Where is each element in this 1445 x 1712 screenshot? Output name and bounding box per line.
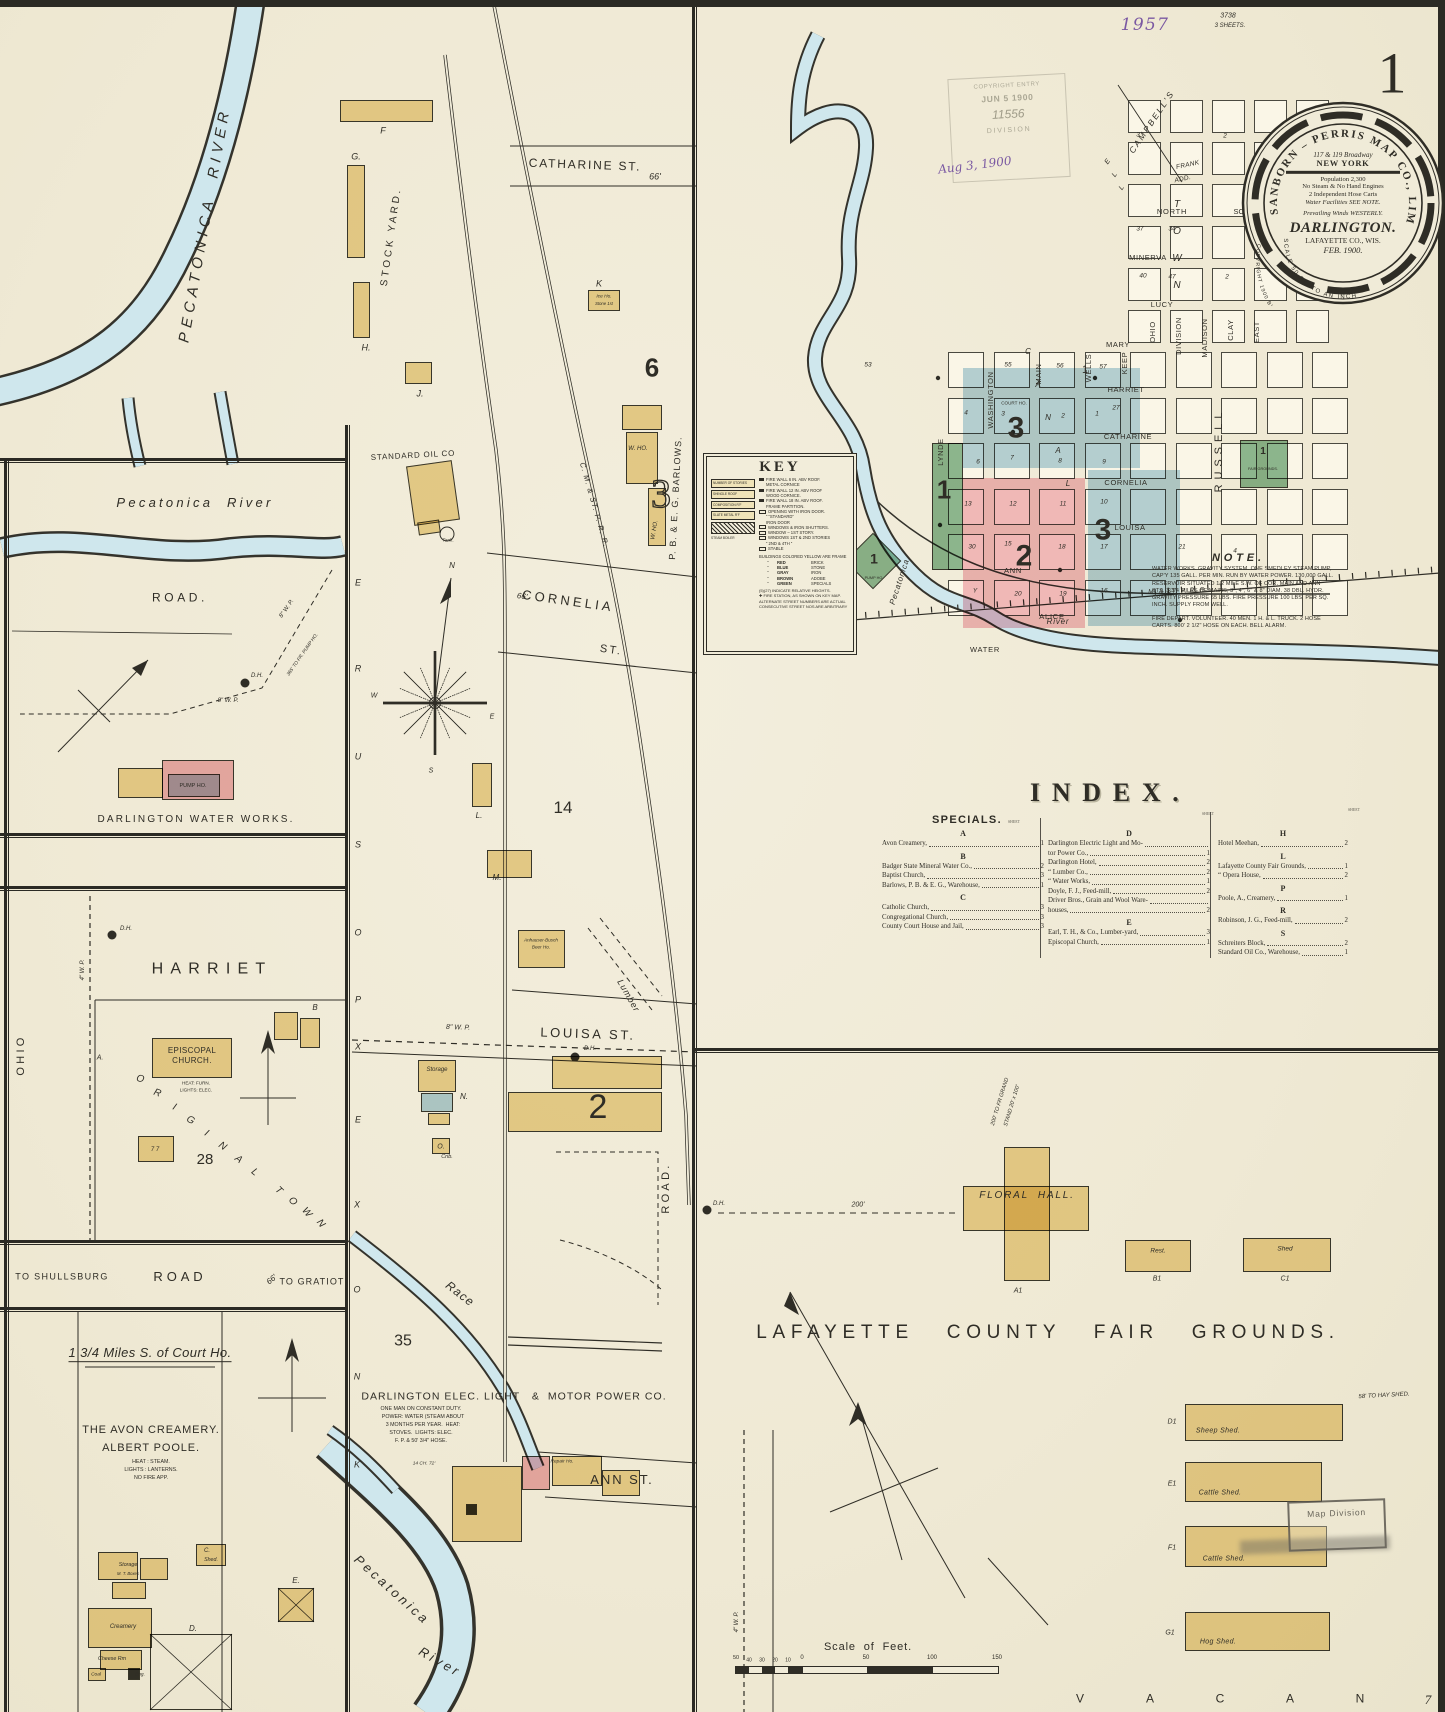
map-label: W <box>371 692 378 699</box>
map-label: ANN ST. <box>590 1473 654 1487</box>
map-label: 50 <box>863 1655 870 1661</box>
panel-border-vertical <box>4 458 9 1712</box>
map-label: 0 <box>800 1655 803 1661</box>
keymap-block <box>1312 489 1348 525</box>
map-label: THE AVON CREAMERY. <box>82 1425 219 1437</box>
map-label: Y <box>973 589 977 596</box>
map-label: F. P. & 50' 3/4" HOSE. <box>395 1439 447 1445</box>
building <box>428 1113 450 1125</box>
scale-bar <box>735 1666 999 1674</box>
map-label: HEAT: FURN. <box>182 1082 210 1087</box>
map-label: 1 <box>1260 447 1266 458</box>
map-label: WATER <box>970 646 1000 654</box>
map-label: Shed. <box>204 1558 218 1564</box>
scale-segment <box>775 1667 788 1673</box>
key-sample-label: NUMBER OF STORIES <box>711 479 755 488</box>
map-label: 3 <box>651 473 671 515</box>
keymap-block <box>1312 352 1348 388</box>
map-label: ROAD. <box>152 592 208 605</box>
map-label: 11 <box>1060 502 1067 509</box>
map-label: G. <box>351 152 361 161</box>
map-label: 53 <box>864 363 871 370</box>
index-entry: County Court House and Jail,3 <box>882 922 1044 932</box>
map-label: 34 <box>1168 227 1175 234</box>
panel-border <box>0 886 345 891</box>
building <box>552 1056 662 1089</box>
map-label: OHIO <box>1149 321 1157 343</box>
map-label: L <box>1066 480 1070 488</box>
map-label: MINERVA <box>1129 254 1167 262</box>
map-label: D.H. <box>584 1046 596 1052</box>
map-label: J. <box>416 389 423 398</box>
keymap-block <box>1221 489 1257 525</box>
map-label: 1 3/4 Miles S. of Court Ho. <box>69 1346 232 1362</box>
map-label: 20 <box>1014 592 1021 599</box>
map-label: S <box>429 767 434 774</box>
map-label: Anhauser-Busch <box>524 939 558 944</box>
map-label: D1 <box>1168 1418 1177 1425</box>
map-label: PUMP HO. <box>179 784 206 790</box>
building <box>150 1634 232 1710</box>
map-label: 21 <box>1178 545 1185 552</box>
map-label: Ice Ho. <box>596 294 611 299</box>
keymap-block <box>1312 443 1348 479</box>
fairgrounds-panel-border <box>692 1048 1440 1053</box>
map-label: Eng. <box>135 1672 145 1677</box>
map-label: O <box>353 1285 360 1294</box>
index-letter-heading: A <box>882 829 1044 838</box>
index-entry: Doyle, F. J., Feed-mill,2 <box>1048 887 1210 897</box>
stamp-date: JUN 5 1900 <box>949 90 1065 106</box>
map-label: A <box>1286 1693 1294 1706</box>
map-label: Cattle Shed. <box>1203 1555 1246 1562</box>
map-label: 28 <box>197 1152 214 1168</box>
map-label: K <box>354 1460 360 1469</box>
map-label: LOUISA ST. <box>540 1026 636 1043</box>
map-label: 2 <box>589 1090 608 1126</box>
map-label: TO SHULLSBURG <box>15 1272 108 1281</box>
sheet-top-edge <box>0 0 1445 7</box>
map-label: V <box>1076 1693 1084 1706</box>
index-entry: Episcopal Church,1 <box>1048 938 1210 948</box>
map-label: E1 <box>1168 1480 1177 1487</box>
map-label: N <box>449 562 455 570</box>
scale-segment <box>803 1667 867 1673</box>
map-label: Storage <box>426 1067 447 1073</box>
map-label: LAFAYETTE COUNTY FAIR GROUNDS. <box>756 1323 1340 1343</box>
index-title: INDEX. <box>1030 778 1191 808</box>
key-footnotes: (5)(27) INDICATE RELATIVE HEIGHTS.✚ FIRE… <box>759 588 851 609</box>
building <box>300 1018 320 1048</box>
map-label: 1 <box>937 476 951 503</box>
map-label: 1 <box>1095 412 1099 419</box>
map-label: A. <box>97 1054 104 1061</box>
map-label: K <box>596 279 602 288</box>
map-label: 1 <box>1082 365 1088 377</box>
map-label: E. <box>292 1577 300 1585</box>
map-label: DARLINGTON ELEC. LIGHT & MOTOR POWER CO. <box>361 1391 666 1402</box>
building <box>472 763 492 807</box>
seal-center-text: 117 & 119 Broadway NEW YORK Population 2… <box>1278 151 1408 255</box>
map-label: Shed <box>1277 1247 1292 1254</box>
map-label: 10 <box>1100 500 1107 507</box>
building <box>1243 1238 1331 1272</box>
map-label: 3 <box>1001 412 1005 419</box>
map-label: 2 <box>1223 134 1227 141</box>
index-letter-heading: E <box>1048 918 1210 927</box>
map-label: D.H. <box>251 673 263 679</box>
key-sample-diagrams: NUMBER OF STORIESSHINGLE ROOFCOMPOSITION… <box>711 479 755 541</box>
map-label: 16 <box>1100 589 1107 596</box>
map-label: 37 <box>1136 227 1143 234</box>
index-entry: Catholic Church,3 <box>882 903 1044 913</box>
panel-border <box>0 1240 345 1245</box>
index-letter-heading: D <box>1048 829 1210 838</box>
scale-segment <box>736 1667 749 1673</box>
panel-border <box>0 1307 345 1312</box>
map-label: Cattle Shed. <box>1199 1489 1242 1496</box>
index-entry: tor Power Co.,1 <box>1048 849 1210 859</box>
building <box>1125 1240 1191 1272</box>
index-entry: Driver Bros., Grain and Wool Ware- <box>1048 896 1210 906</box>
map-label: 14 <box>554 799 573 817</box>
map-label: 13 <box>964 502 971 509</box>
key-hatch-sample <box>711 522 755 534</box>
map-label: 10 <box>785 1658 791 1663</box>
panel-border-vertical <box>345 425 350 1712</box>
building <box>274 1012 298 1040</box>
keymap-block <box>1312 398 1348 434</box>
map-label: CLAY <box>1227 319 1235 340</box>
index-entry: Badger State Mineral Water Co.,2 <box>882 862 1044 872</box>
map-label: Creamery <box>110 1624 136 1630</box>
seal-title: DARLINGTON. <box>1278 220 1408 237</box>
map-label: E <box>355 578 361 587</box>
scale-segment <box>762 1667 775 1673</box>
map-label: H. <box>362 343 371 352</box>
seal-water-facilities: Water Facilities SEE NOTE. <box>1278 198 1408 206</box>
keymap-block <box>1267 398 1303 434</box>
key-sample-label: SLATE METAL R'F <box>711 511 755 520</box>
map-label: 55 <box>1004 363 1011 370</box>
scale-segment <box>933 1667 998 1673</box>
index-letter-heading: L <box>1218 852 1348 861</box>
map-label: HARRIET <box>152 962 273 979</box>
index-letter-heading: H <box>1218 829 1348 838</box>
map-label: CATHARINE <box>1104 433 1152 441</box>
map-label: W. HO. <box>628 446 647 452</box>
map-label: COURT HO. <box>1001 402 1027 407</box>
map-label: D.H. <box>713 1201 725 1207</box>
map-label: B1 <box>1153 1275 1162 1282</box>
map-label: D. <box>189 1625 197 1633</box>
panel-border <box>0 833 345 838</box>
map-label: River <box>1047 618 1070 626</box>
map-label: E <box>490 713 495 720</box>
map-label: 4" W. P. <box>734 1612 740 1633</box>
map-label: X <box>355 1042 361 1051</box>
map-label: CORNELIA <box>1104 479 1147 487</box>
map-label: N. <box>460 1093 468 1101</box>
index-entry: Congregational Church,3 <box>882 913 1044 923</box>
map-label: 2 <box>1225 275 1229 282</box>
map-label: 7 7 <box>151 1147 159 1153</box>
map-label: MARY <box>1106 341 1130 349</box>
index-entry: Avon Creamery,1 <box>882 839 1044 849</box>
map-label: D.H. <box>120 926 132 932</box>
index-column-rule <box>1210 812 1211 958</box>
key-color-row: “GREENSPECIALS <box>759 581 851 586</box>
map-label: 3738 <box>1220 12 1236 19</box>
map-label: 200' <box>851 1201 864 1208</box>
map-label: NORTH <box>1157 208 1187 216</box>
building <box>140 1558 168 1580</box>
map-label: S <box>355 840 361 849</box>
index-entry: houses,2 <box>1048 906 1210 916</box>
panel-border-vertical <box>692 7 697 1712</box>
map-label: 3 <box>1136 133 1140 140</box>
map-label: Sheep Shed. <box>1196 1427 1240 1434</box>
building <box>508 1092 662 1132</box>
map-label: 15 <box>1004 542 1011 549</box>
map-label: 100 <box>927 1655 937 1661</box>
map-label: Storage <box>119 1563 138 1569</box>
index-entry: Barlows, P. B. & E. G., Warehouse,1 <box>882 881 1044 891</box>
map-label: O <box>354 928 361 937</box>
keymap-block <box>1267 352 1303 388</box>
note-title: NOTE. <box>1212 552 1334 564</box>
map-label: Rest. <box>1150 1249 1165 1256</box>
map-label: C <box>1025 348 1031 356</box>
map-label: RUSSELL <box>1214 408 1226 493</box>
map-label: 56 <box>1056 364 1063 371</box>
map-label: 19 <box>1059 592 1066 599</box>
scale-segment <box>867 1667 933 1673</box>
map-label: OHIO <box>16 1034 28 1075</box>
map-label: 47 <box>1168 275 1175 282</box>
map-label: 7 <box>1425 1693 1432 1707</box>
seal-winds: Prevailing Winds WESTERLY. <box>1278 210 1408 218</box>
index-entry: Earl, T. H., & Co., Lumber-yard,3 <box>1048 928 1210 938</box>
map-label: 30 <box>968 545 975 552</box>
map-label: N <box>354 1372 361 1381</box>
map-label: P <box>355 995 361 1004</box>
map-label: HARRIET <box>1107 386 1144 394</box>
index-entry: “ Lumber Co.,2 <box>1048 868 1210 878</box>
index-entry: “ Opera House,2 <box>1218 871 1348 881</box>
index-letter-heading: R <box>1218 906 1348 915</box>
seal-city: NEW YORK <box>1278 159 1408 169</box>
map-label: 20 <box>772 1658 778 1663</box>
map-label: T <box>1174 200 1180 211</box>
map-label: 8" W. P. <box>218 698 239 704</box>
index-entry: Baptist Church,3 <box>882 871 1044 881</box>
map-label: NO FIRE APP. <box>134 1476 168 1482</box>
map-label: L. <box>476 812 483 820</box>
keymap-block <box>1221 352 1257 388</box>
map-label: STOVES. LIGHTS: ELEC. <box>389 1431 452 1437</box>
map-label: EPISCOPAL <box>168 1047 216 1055</box>
map-label: 3 SHEETS. <box>1215 23 1246 29</box>
map-label: 30 <box>759 1658 765 1663</box>
map-label: C <box>1216 1693 1225 1706</box>
map-label: PUMP HO. <box>865 576 884 580</box>
key-sample-label: SHINGLE ROOF <box>711 490 755 499</box>
building <box>405 362 432 384</box>
map-label: W <box>1172 254 1181 265</box>
map-label: LIGHTS: ELEC. <box>180 1089 212 1094</box>
index-sheet-microlabel: SHEET <box>1202 812 1214 816</box>
index-entry: Standard Oil Co., Warehouse,1 <box>1218 948 1348 958</box>
map-label: F <box>380 126 386 135</box>
building <box>1185 1404 1343 1441</box>
seal-population: Population 2,300 <box>1278 176 1408 184</box>
index-column: AAvon Creamery,1BBadger State Mineral Wa… <box>882 826 1044 932</box>
index-entry: Robinson, J. G., Feed-mill,2 <box>1218 916 1348 926</box>
map-label: LOUISA <box>1114 524 1145 532</box>
note-section: NOTE. WATER WORKS. GRAVITY SYSTEM. ONE S… <box>1152 552 1334 636</box>
map-label: 57 <box>1099 365 1106 372</box>
building <box>452 1466 522 1542</box>
map-label: Cheese Rm <box>98 1657 126 1663</box>
map-label: ONE MAN ON CONSTANT DUTY. <box>381 1407 462 1413</box>
map-label: WASHINGTON <box>987 371 995 428</box>
building <box>118 768 163 798</box>
key-legend: KEY NUMBER OF STORIESSHINGLE ROOFCOMPOSI… <box>706 456 854 652</box>
scale-segment <box>788 1667 803 1673</box>
map-label: C. <box>204 1548 210 1554</box>
map-label: 3 <box>1095 514 1112 546</box>
building <box>278 1588 314 1622</box>
index-entry: Darlington Hotel,2 <box>1048 858 1210 868</box>
map-label: 14 CH. 72' <box>413 1461 436 1466</box>
map-label: KEEP <box>1121 352 1129 374</box>
map-label: MADISON <box>1201 318 1209 357</box>
index-letter-heading: C <box>882 893 1044 902</box>
building <box>347 165 365 258</box>
map-label: FAIR GROUNDS. <box>1248 467 1278 471</box>
map-label: 35 <box>394 1334 412 1351</box>
keymap-block <box>1170 100 1203 133</box>
map-label: 1 <box>1378 44 1407 105</box>
map-label: F1 <box>1168 1544 1176 1551</box>
map-label: A <box>1146 1693 1154 1706</box>
map-label: X <box>354 1200 360 1209</box>
map-label: Tank. <box>442 538 454 543</box>
sanborn-perris-seal: SANBORN – PERRIS MAP CO., LIMITED COPYRI… <box>1240 100 1445 306</box>
index-sheet-microlabel: SHEET <box>1008 820 1020 824</box>
note-water-works: WATER WORKS. GRAVITY SYSTEM. ONE SMEDLEY… <box>1152 566 1334 610</box>
map-label: Stone 1st <box>595 302 613 306</box>
map-label: 50 <box>733 1656 739 1662</box>
map-label: U <box>355 752 362 761</box>
map-label: Pecatonica River <box>116 496 273 510</box>
map-label: 6 <box>976 460 980 467</box>
key-sample-label: STEAM BOILER <box>711 536 755 541</box>
map-label: 66' <box>649 172 661 181</box>
building <box>466 1504 477 1515</box>
map-label: CHURCH. <box>172 1057 212 1065</box>
keymap-block <box>1176 443 1212 479</box>
stamp-division: DIVISION <box>951 124 1067 137</box>
building <box>522 1456 550 1490</box>
panel-border <box>0 458 345 463</box>
building <box>340 100 433 122</box>
map-label: 2 <box>1061 414 1065 421</box>
map-label: E <box>355 1115 361 1124</box>
index-column-rule <box>1040 818 1041 958</box>
index-entry: Darlington Electric Light and Mo- <box>1048 839 1210 849</box>
map-label: 1957 <box>1121 17 1170 35</box>
key-title: KEY <box>710 459 850 476</box>
map-label: Repair Ho. <box>551 1459 574 1464</box>
map-label: 6 <box>645 354 659 381</box>
map-label: DARLINGTON WATER WORKS. <box>97 815 294 826</box>
map-label: Coal <box>91 1672 101 1677</box>
map-label: N <box>1173 281 1180 292</box>
map-label: 9 <box>1102 460 1106 467</box>
keymap-block <box>1176 489 1212 525</box>
seal-date: FEB. 1900. <box>1278 245 1408 255</box>
building <box>406 460 460 526</box>
seal-hose-carts: 2 Independent Hose Carts <box>1278 191 1408 199</box>
map-label: N <box>1356 1693 1365 1706</box>
index-letter-heading: S <box>1218 929 1348 938</box>
map-label: A <box>1035 381 1040 389</box>
index-entry: Lafayette County Fair Grounds,1 <box>1218 862 1348 872</box>
map-label: M. <box>493 874 502 882</box>
keymap-block <box>1267 489 1303 525</box>
map-label: 3 <box>1008 412 1025 444</box>
map-label: EAST <box>1253 321 1261 343</box>
key-sample-label: COMPOSITION R'F <box>711 501 755 510</box>
map-label: DIVISION <box>1175 317 1183 355</box>
map-label: 4 <box>964 411 968 418</box>
map-label: LYNDE <box>937 438 945 465</box>
index-letter-heading: P <box>1218 884 1348 893</box>
map-label: 40 <box>746 1658 752 1663</box>
map-label: LIGHTS : LANTERNS. <box>124 1468 177 1474</box>
index-entry: Hotel Meehan,2 <box>1218 839 1348 849</box>
index-entry: Schreiters Block,2 <box>1218 939 1348 949</box>
map-label: 27 <box>1112 406 1119 413</box>
map-label: Beer Ho. <box>532 946 550 951</box>
map-label: 150 <box>992 1655 1002 1661</box>
map-label: 4" W. P. <box>80 960 86 981</box>
building <box>1004 1147 1050 1281</box>
map-label: 7 <box>1010 456 1014 463</box>
map-label: G1 <box>1165 1629 1174 1636</box>
note-fire-department: FIRE DEPART. VOLUNTEER. 40 MEN. 1 H. & L… <box>1152 616 1334 631</box>
scale-segment <box>749 1667 762 1673</box>
map-label: R <box>355 664 362 673</box>
map-label: 1 <box>870 552 878 567</box>
index-sheet-microlabel: SHEET <box>1348 808 1360 812</box>
building <box>421 1093 453 1112</box>
map-label: 8 <box>1058 459 1062 466</box>
map-label: A1 <box>1014 1287 1023 1294</box>
index-entry: Poole, A., Creamery,1 <box>1218 894 1348 904</box>
map-label: POWER: WATER (STEAM ABOUT <box>382 1415 464 1421</box>
map-label: 12 <box>1009 502 1016 509</box>
key-row: STABLE <box>759 546 851 551</box>
building <box>622 405 662 430</box>
map-label: 18 <box>1058 545 1065 552</box>
map-label: TO GRATIOT <box>280 1277 345 1286</box>
index-specials-heading: SPECIALS. <box>932 814 1002 826</box>
building <box>353 282 370 338</box>
map-label: B <box>312 1004 317 1012</box>
